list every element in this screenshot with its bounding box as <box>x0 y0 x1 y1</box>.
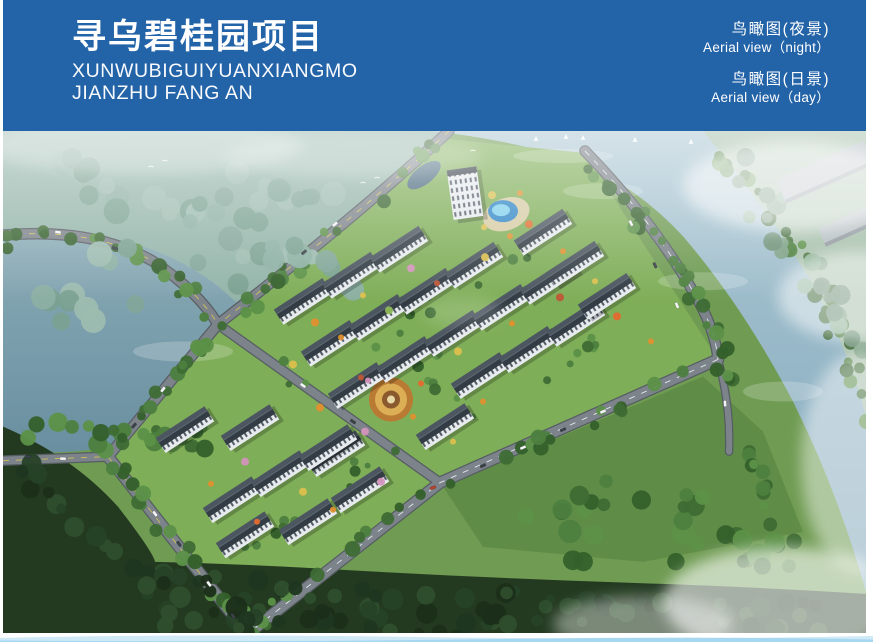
view-label-night-cn: 鸟瞰图(夜景) <box>703 20 830 39</box>
view-labels: 鸟瞰图(夜景) Aerial view（night） 鸟瞰图(日景) Aeria… <box>703 20 830 106</box>
aerial-rendering-day <box>3 131 866 633</box>
view-label-day-cn: 鸟瞰图(日景) <box>703 70 830 89</box>
footer-wave-ribbon <box>0 633 873 642</box>
view-label-night-en: Aerial view（night） <box>703 39 830 56</box>
title-block: 寻乌碧桂园项目 XUNWUBIGUIYUANXIANGMO JIANZHU FA… <box>72 18 358 104</box>
view-label-day: 鸟瞰图(日景) Aerial view（day） <box>703 70 830 106</box>
title-banner: 寻乌碧桂园项目 XUNWUBIGUIYUANXIANGMO JIANZHU FA… <box>3 0 866 131</box>
project-subtitle-line2: JIANZHU FANG AN <box>72 82 358 104</box>
atmospheric-haze <box>3 131 866 301</box>
view-label-day-en: Aerial view（day） <box>703 89 830 106</box>
view-label-night: 鸟瞰图(夜景) Aerial view（night） <box>703 20 830 56</box>
project-subtitle-line1: XUNWUBIGUIYUANXIANGMO <box>72 60 358 82</box>
project-title: 寻乌碧桂园项目 <box>72 18 358 56</box>
presentation-slide: 寻乌碧桂园项目 XUNWUBIGUIYUANXIANGMO JIANZHU FA… <box>0 0 873 642</box>
